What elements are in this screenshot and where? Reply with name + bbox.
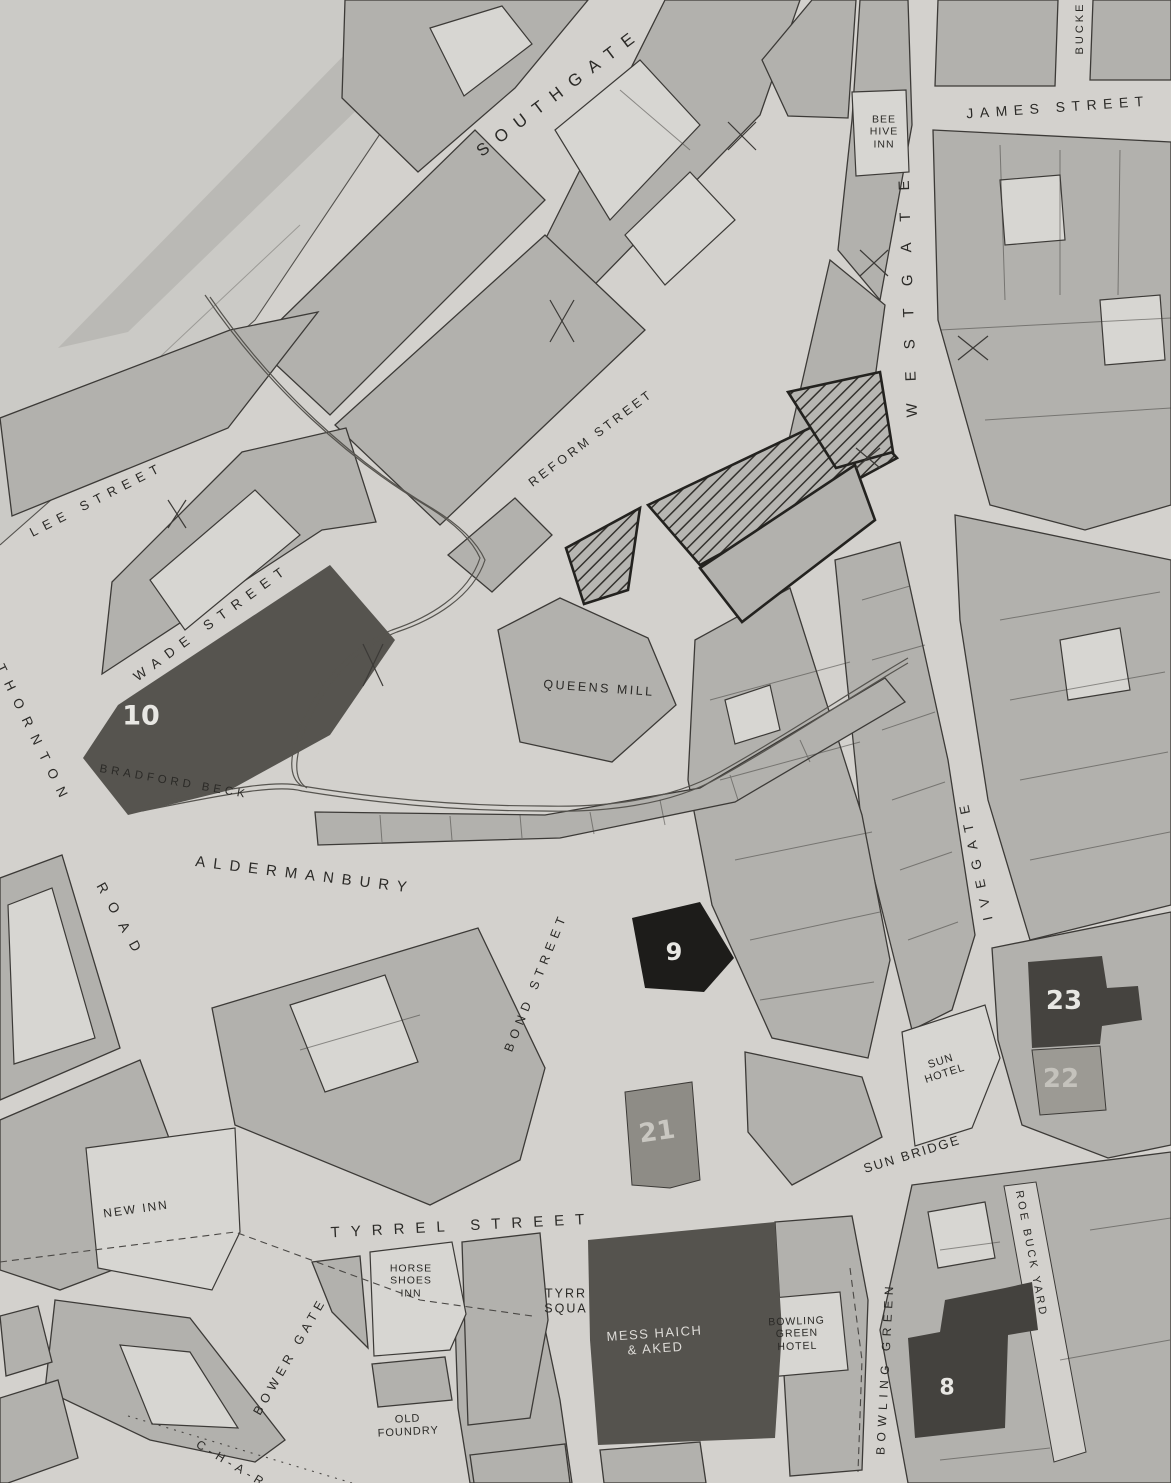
parcel-number-10: 10 bbox=[122, 701, 160, 732]
map-canvas bbox=[0, 0, 1171, 1483]
parcel-number-9: 9 bbox=[666, 938, 683, 966]
parcel-number-21: 21 bbox=[637, 1115, 677, 1150]
parcel-number-8: 8 bbox=[939, 1376, 954, 1401]
place-label-old-foundry: OLD FOUNDRY bbox=[377, 1411, 439, 1440]
place-label-bee-hive-inn: BEE HIVE INN bbox=[870, 113, 899, 150]
place-label-horse-shoes-inn: HORSE SHOES INN bbox=[390, 1262, 432, 1299]
street-label-buck: BUCKE bbox=[1074, 2, 1086, 55]
place-label-tyrrel-square: TYRR SQUA bbox=[544, 1286, 587, 1316]
historical-street-map: SOUTHGATE JAMES STREET BUCKE BEE HIVE IN… bbox=[0, 0, 1171, 1483]
parcel-number-22: 22 bbox=[1043, 1064, 1079, 1094]
place-label-bowling-green-hotel: BOWLING GREEN HOTEL bbox=[768, 1314, 826, 1353]
parcel-number-23: 23 bbox=[1046, 986, 1082, 1016]
